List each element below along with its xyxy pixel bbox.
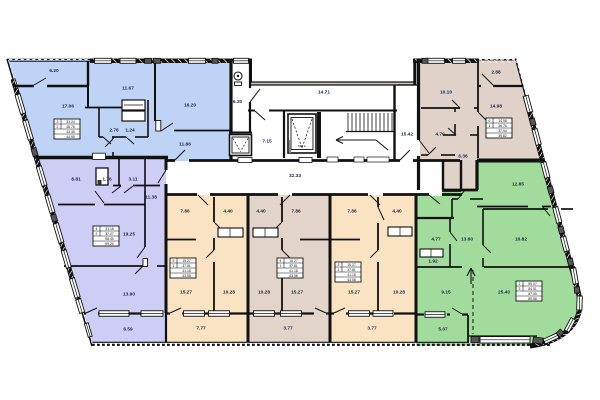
svg-text:6.59: 6.59 bbox=[123, 327, 133, 333]
svg-text:10.10: 10.10 bbox=[440, 90, 452, 96]
svg-text:10.28: 10.28 bbox=[393, 290, 405, 296]
svg-text:9.15: 9.15 bbox=[441, 290, 451, 296]
svg-text:1: 1 bbox=[489, 124, 491, 128]
svg-text:15.42: 15.42 bbox=[401, 132, 413, 138]
svg-text:4.70: 4.70 bbox=[435, 132, 445, 138]
svg-text:8.81: 8.81 bbox=[71, 177, 81, 183]
svg-text:48.76: 48.76 bbox=[66, 125, 75, 129]
svg-text:11.38: 11.38 bbox=[145, 195, 157, 201]
svg-text:43.58: 43.58 bbox=[347, 278, 356, 282]
svg-text:630 кг: 630 кг bbox=[298, 144, 306, 148]
svg-text:4.40: 4.40 bbox=[256, 209, 266, 215]
svg-text:2: 2 bbox=[519, 282, 521, 286]
svg-text:84.51: 84.51 bbox=[528, 287, 537, 291]
svg-text:7.86: 7.86 bbox=[347, 209, 357, 215]
svg-text:33.24: 33.24 bbox=[66, 120, 75, 124]
svg-text:11.67: 11.67 bbox=[122, 86, 134, 92]
svg-text:41.18: 41.18 bbox=[347, 273, 356, 277]
svg-text:59.20: 59.20 bbox=[105, 242, 114, 246]
svg-text:6.30: 6.30 bbox=[233, 99, 243, 105]
svg-text:15.27: 15.27 bbox=[291, 290, 303, 296]
svg-text:17.06: 17.06 bbox=[62, 104, 74, 110]
svg-text:2: 2 bbox=[57, 125, 59, 129]
svg-text:4: 4 bbox=[280, 259, 282, 263]
svg-text:16.82: 16.82 bbox=[515, 237, 527, 243]
svg-text:3: 3 bbox=[338, 263, 340, 267]
svg-text:5: 5 bbox=[173, 259, 175, 263]
svg-text:43.58: 43.58 bbox=[182, 274, 191, 278]
svg-text:87.05: 87.05 bbox=[528, 292, 537, 296]
svg-text:58.40: 58.40 bbox=[105, 237, 114, 241]
svg-text:1.92: 1.92 bbox=[428, 259, 438, 265]
svg-text:16.20: 16.20 bbox=[184, 103, 196, 109]
svg-text:41.18: 41.18 bbox=[289, 269, 298, 273]
svg-text:14.71: 14.71 bbox=[318, 90, 330, 96]
svg-text:6.20: 6.20 bbox=[49, 68, 59, 74]
svg-text:39.82: 39.82 bbox=[498, 134, 507, 138]
svg-text:3: 3 bbox=[57, 120, 59, 124]
svg-text:6.36: 6.36 bbox=[458, 154, 468, 160]
svg-text:89.58: 89.58 bbox=[528, 297, 537, 301]
svg-text:13.60: 13.60 bbox=[461, 237, 473, 243]
svg-text:15.27: 15.27 bbox=[348, 290, 360, 296]
svg-text:4.77: 4.77 bbox=[431, 237, 441, 243]
svg-text:15.27: 15.27 bbox=[289, 259, 298, 263]
svg-text:37.07: 37.07 bbox=[105, 232, 114, 236]
svg-text:37.81: 37.81 bbox=[289, 264, 298, 268]
svg-text:43.58: 43.58 bbox=[289, 274, 298, 278]
svg-text:13.90: 13.90 bbox=[123, 292, 135, 298]
svg-text:37.54: 37.54 bbox=[498, 129, 507, 133]
svg-text:5.07: 5.07 bbox=[438, 327, 448, 333]
svg-text:3.77: 3.77 bbox=[283, 326, 293, 332]
svg-text:15.27: 15.27 bbox=[347, 263, 356, 267]
svg-text:14.98: 14.98 bbox=[498, 119, 507, 123]
svg-text:31.15: 31.15 bbox=[105, 227, 114, 231]
svg-text:1.76: 1.76 bbox=[102, 177, 112, 183]
svg-text:3.77: 3.77 bbox=[367, 326, 377, 332]
svg-text:3: 3 bbox=[519, 287, 521, 291]
svg-text:44.95: 44.95 bbox=[66, 135, 75, 139]
svg-text:32.33: 32.33 bbox=[289, 173, 301, 179]
svg-text:1: 1 bbox=[173, 264, 175, 268]
svg-text:10.28: 10.28 bbox=[258, 290, 270, 296]
svg-text:4: 4 bbox=[96, 227, 98, 231]
svg-text:7.77: 7.77 bbox=[196, 326, 206, 332]
svg-text:6: 6 bbox=[489, 119, 491, 123]
svg-text:12.85: 12.85 bbox=[512, 182, 524, 188]
svg-text:7.86: 7.86 bbox=[291, 209, 301, 215]
svg-text:1.24: 1.24 bbox=[125, 128, 135, 134]
svg-text:55.07: 55.07 bbox=[528, 282, 537, 286]
svg-text:7.86: 7.86 bbox=[180, 209, 190, 215]
svg-text:1: 1 bbox=[338, 268, 340, 272]
svg-text:36.76: 36.76 bbox=[498, 124, 507, 128]
svg-text:15.27: 15.27 bbox=[182, 259, 191, 263]
svg-text:4.40: 4.40 bbox=[392, 209, 402, 215]
svg-text:37.81: 37.81 bbox=[182, 264, 191, 268]
svg-text:15.27: 15.27 bbox=[180, 290, 192, 296]
svg-text:11.86: 11.86 bbox=[179, 142, 191, 148]
svg-text:14.98: 14.98 bbox=[490, 104, 502, 110]
svg-text:19.25: 19.25 bbox=[123, 232, 135, 238]
svg-text:7.15: 7.15 bbox=[262, 139, 272, 145]
svg-text:37.81: 37.81 bbox=[347, 268, 356, 272]
svg-text:4.40: 4.40 bbox=[223, 209, 233, 215]
svg-text:43.35: 43.35 bbox=[66, 130, 75, 134]
svg-text:2.76: 2.76 bbox=[109, 128, 119, 134]
svg-text:10.28: 10.28 bbox=[223, 290, 235, 296]
svg-text:2.88: 2.88 bbox=[491, 70, 501, 76]
svg-text:3.11: 3.11 bbox=[128, 177, 137, 183]
svg-text:41.18: 41.18 bbox=[182, 269, 191, 273]
svg-text:25.40: 25.40 bbox=[498, 290, 510, 296]
svg-text:1: 1 bbox=[280, 264, 282, 268]
svg-text:2: 2 bbox=[96, 232, 98, 236]
